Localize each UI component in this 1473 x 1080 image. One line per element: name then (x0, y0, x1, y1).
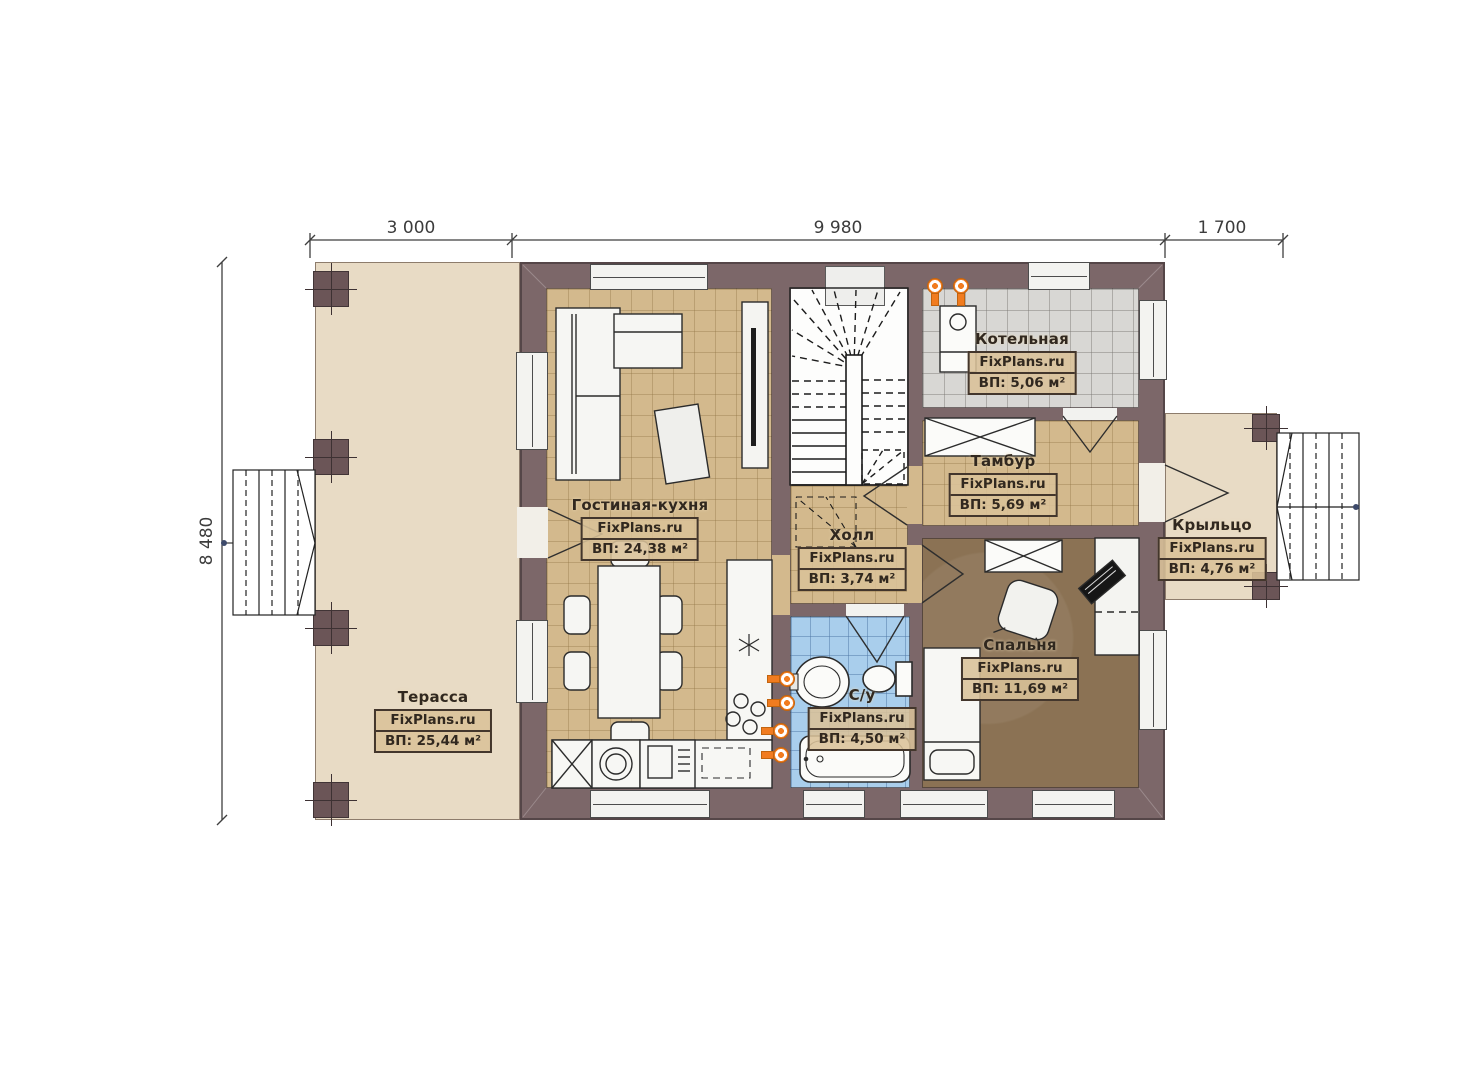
room-info-box: FixPlans.ru ВП: 4,50 м² (808, 707, 917, 751)
room-info-box: FixPlans.ru ВП: 4,76 м² (1158, 537, 1267, 581)
room-area: ВП: 24,38 м² (583, 538, 697, 559)
coffee-table (654, 404, 709, 484)
dining-table (598, 566, 660, 718)
heating-icon (951, 278, 971, 308)
door-hall-vestibule (864, 467, 907, 525)
room-label-bedroom: Спальня FixPlans.ru ВП: 11,69 м² (961, 636, 1079, 701)
room-name: Холл (798, 526, 907, 544)
dim-top-3: 1 700 (1198, 218, 1247, 238)
door-bathroom (846, 616, 904, 662)
room-area: ВП: 5,69 м² (951, 494, 1056, 515)
room-name: Крыльцо (1158, 516, 1267, 534)
watermark-text: FixPlans.ru (376, 711, 490, 730)
heating-icon (765, 693, 795, 713)
tv-screen (751, 328, 756, 446)
room-label-vestibule: Тамбур FixPlans.ru ВП: 5,69 м² (949, 452, 1058, 517)
dining-set (564, 541, 682, 748)
room-area: ВП: 4,76 м² (1160, 558, 1265, 579)
room-info-box: FixPlans.ru ВП: 11,69 м² (961, 657, 1079, 701)
tv-cabinet (742, 302, 768, 468)
dim-left: 8 480 (197, 517, 217, 566)
watermark-text: FixPlans.ru (1160, 539, 1265, 558)
room-info-box: FixPlans.ru ВП: 24,38 м² (581, 517, 699, 561)
room-area: ВП: 4,50 м² (810, 728, 915, 749)
watermark-text: FixPlans.ru (810, 709, 915, 728)
staircase (790, 288, 908, 547)
room-label-boiler: Котельная FixPlans.ru ВП: 5,06 м² (968, 330, 1077, 395)
heating-icon (925, 278, 945, 308)
dim-top-2: 9 980 (814, 218, 863, 238)
bedroom-desk (1079, 538, 1139, 655)
room-label-living-kitchen: Гостиная-кухня FixPlans.ru ВП: 24,38 м² (572, 496, 709, 561)
room-info-box: FixPlans.ru ВП: 25,44 м² (374, 709, 492, 753)
watermark-text: FixPlans.ru (583, 519, 697, 538)
watermark-text: FixPlans.ru (800, 549, 905, 568)
room-name: Гостиная-кухня (572, 496, 709, 514)
watermark-text: FixPlans.ru (963, 659, 1077, 678)
room-area: ВП: 3,74 м² (800, 568, 905, 589)
room-label-hall: Холл FixPlans.ru ВП: 3,74 м² (798, 526, 907, 591)
door-boiler (1063, 416, 1117, 452)
pillow (930, 750, 974, 774)
watermark-text: FixPlans.ru (951, 475, 1056, 494)
room-info-box: FixPlans.ru ВП: 5,69 м² (949, 473, 1058, 517)
room-area: ВП: 25,44 м² (376, 730, 490, 751)
porch-steps (1277, 433, 1359, 580)
room-label-terrace: Терасса FixPlans.ru ВП: 25,44 м² (374, 688, 492, 753)
door-hall-bedroom (922, 545, 963, 603)
floor-plan: 3 000 9 980 1 700 8 480 Терасса FixPlans… (0, 0, 1473, 1080)
heating-icon (765, 669, 795, 689)
heating-icon (759, 721, 789, 741)
room-name: Тамбур (949, 452, 1058, 470)
room-area: ВП: 5,06 м² (970, 372, 1075, 393)
dim-top-1: 3 000 (387, 218, 436, 238)
watermark-text: FixPlans.ru (970, 353, 1075, 372)
room-label-porch: Крыльцо FixPlans.ru ВП: 4,76 м² (1158, 516, 1267, 581)
door-porch (1165, 465, 1228, 522)
vestibule-wardrobe (925, 418, 1035, 456)
room-area: ВП: 11,69 м² (963, 678, 1077, 699)
room-name: Котельная (968, 330, 1077, 348)
room-name: Спальня (961, 636, 1079, 654)
bedroom-wardrobe (985, 540, 1062, 572)
room-label-bathroom: С/у FixPlans.ru ВП: 4,50 м² (808, 686, 917, 751)
room-info-box: FixPlans.ru ВП: 3,74 м² (798, 547, 907, 591)
room-name: Терасса (374, 688, 492, 706)
heating-icon (759, 745, 789, 765)
terrace-steps (233, 470, 315, 615)
room-name: С/у (808, 686, 917, 704)
room-info-box: FixPlans.ru ВП: 5,06 м² (968, 351, 1077, 395)
